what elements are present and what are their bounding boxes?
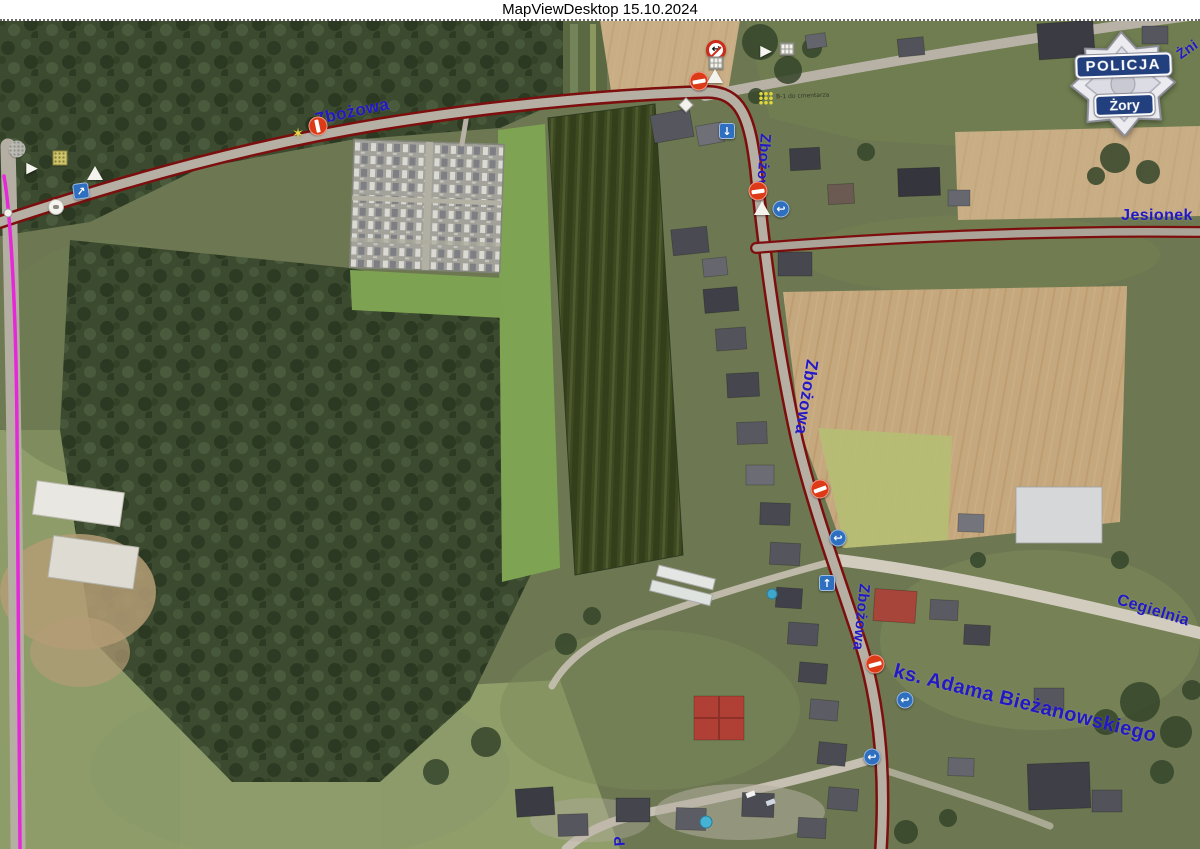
window-title: MapViewDesktop 15.10.2024 <box>502 1 698 18</box>
down-arrow-glyph: ↓ <box>722 125 731 138</box>
street-label-jesionek: Jesionek <box>1121 207 1193 225</box>
up-arrow-marker-icon[interactable]: ↑ <box>819 575 835 591</box>
direction-triangle-icon[interactable]: ▶ <box>26 161 38 176</box>
police-badge-city: Żory <box>1094 93 1155 117</box>
turn-marker-icon[interactable]: ↩ <box>864 749 881 766</box>
yield-sign-icon[interactable] <box>754 201 770 215</box>
turn-marker-icon[interactable]: ↩ <box>773 201 790 218</box>
map-viewport[interactable] <box>0 21 1200 849</box>
direction-triangle-icon[interactable]: ▶ <box>760 44 772 59</box>
grid-marker-icon[interactable] <box>709 57 724 70</box>
diagonal-arrow-marker-icon[interactable]: ↗ <box>72 182 90 200</box>
window-titlebar: MapViewDesktop 15.10.2024 <box>0 0 1200 21</box>
grid-marker-icon[interactable] <box>780 43 795 56</box>
police-badge-title: POLICJA <box>1075 52 1171 78</box>
star-marker-icon[interactable]: ✶ <box>292 127 305 142</box>
turn-marker-icon[interactable]: ↩ <box>830 530 847 547</box>
yield-sign-icon[interactable] <box>707 69 723 83</box>
circle-marker-icon[interactable] <box>9 141 26 158</box>
up-arrow-glyph: ↑ <box>822 577 831 590</box>
app-window: MapViewDesktop 15.10.2024 Zbożowa Zbożow… <box>0 0 1200 849</box>
dots-marker-icon[interactable] <box>759 92 774 105</box>
turn-arrow-glyph: ↩ <box>833 532 842 545</box>
turn-arrow-glyph: ↩ <box>776 203 785 216</box>
khaki-square-marker-icon[interactable] <box>53 151 68 166</box>
police-badge-logo: POLICJA Żory <box>1066 26 1182 146</box>
street-label-bottom-partial: P <box>611 835 629 847</box>
turn-arrow-glyph: ↩ <box>867 751 876 764</box>
down-arrow-marker-icon[interactable]: ↓ <box>719 123 735 139</box>
diagonal-arrow-glyph: ↗ <box>76 184 87 198</box>
police-star-icon <box>1066 26 1182 146</box>
white-circle-sign-icon[interactable] <box>48 199 64 215</box>
turn-marker-icon[interactable]: ↩ <box>897 692 914 709</box>
turn-arrow-glyph: ↩ <box>900 694 909 707</box>
turn-arrow-glyph: ↩ <box>712 45 720 55</box>
yield-sign-icon[interactable] <box>87 166 103 180</box>
